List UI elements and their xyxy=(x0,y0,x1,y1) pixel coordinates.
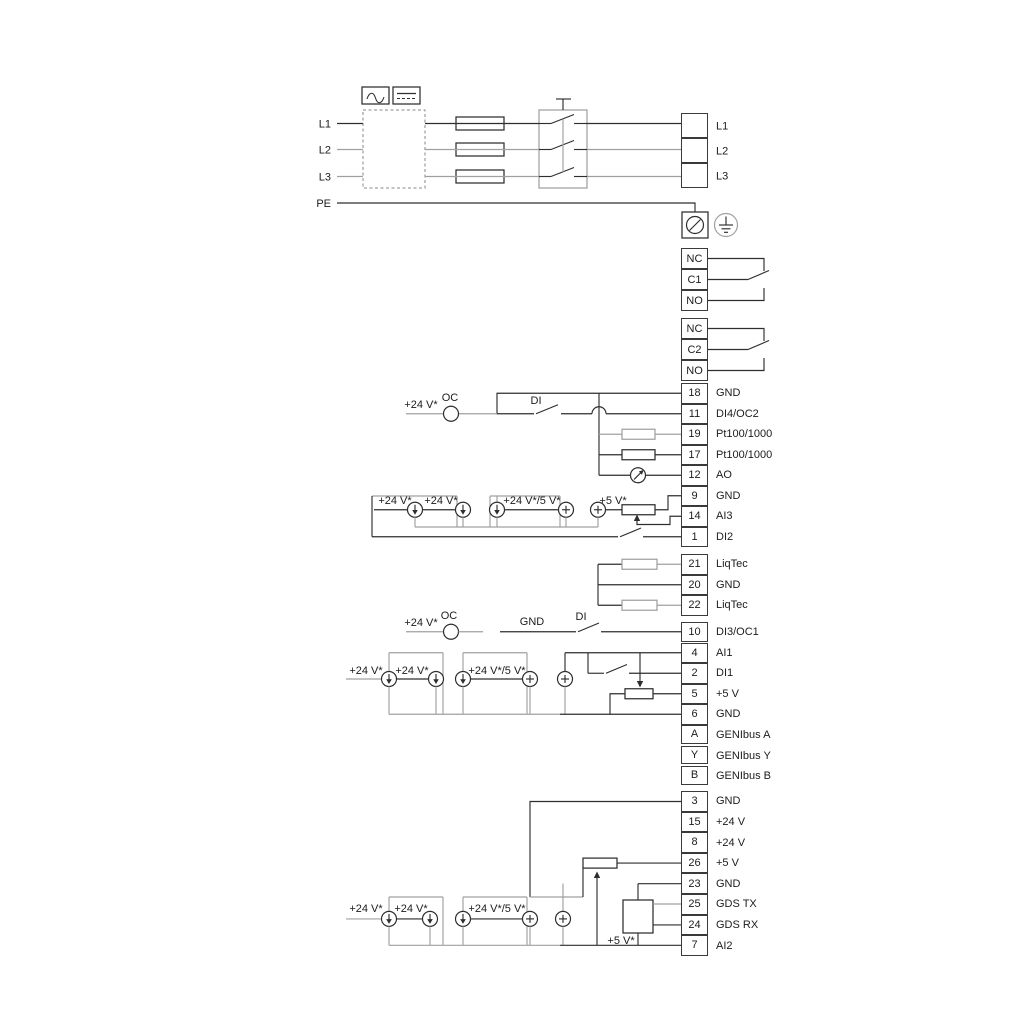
terminal-label: DI4/OC2 xyxy=(716,407,759,421)
terminal-io-block-3-26: 26 xyxy=(681,853,708,874)
potentiometer xyxy=(625,689,653,699)
open-collector-icon xyxy=(444,624,459,639)
terminal-label: GENIbus A xyxy=(716,728,770,742)
inline-label: +24 V* xyxy=(395,665,429,677)
terminal-number: Y xyxy=(691,749,698,761)
wiring-layer: +24 V*OCDI+24 V*+24 V*+24 V*/5 V*+5 V*+2… xyxy=(0,0,1024,1024)
terminal-io-block-3-23: 23 xyxy=(681,873,708,894)
inline-label: +24 V*/5 V* xyxy=(503,495,561,507)
terminal-number: 23 xyxy=(688,878,700,890)
terminal-number: 18 xyxy=(688,387,700,399)
terminal-io-block-1-19: 19 xyxy=(681,424,708,445)
relay-blade xyxy=(748,271,769,280)
inline-label: +5 V* xyxy=(607,935,635,947)
terminal-number: 22 xyxy=(688,599,700,611)
terminal-number: NO xyxy=(686,295,703,307)
resistor-pt100 xyxy=(622,450,655,460)
terminal-io-block-1-9: 9 xyxy=(681,486,708,507)
wiper-arrow-icon xyxy=(637,681,643,688)
phase-label: L2 xyxy=(319,145,331,157)
inline-label: DI xyxy=(576,611,587,623)
terminal-relay-output-1-NC: NC xyxy=(681,248,708,269)
potentiometer xyxy=(583,858,617,868)
terminal-number: NO xyxy=(686,365,703,377)
terminal-label: GND xyxy=(716,794,740,808)
terminal-number: 8 xyxy=(691,836,697,848)
terminal-label: +5 V xyxy=(716,687,739,701)
inline-label: +24 V* xyxy=(349,665,383,677)
terminal-relay-output-1-NO: NO xyxy=(681,290,708,311)
terminal-label: GND xyxy=(716,707,740,721)
terminal-number: NC xyxy=(687,253,703,265)
terminal-io-block-2-4: 4 xyxy=(681,643,708,664)
inline-label: +24 V* xyxy=(404,399,438,411)
terminal-number: 26 xyxy=(688,857,700,869)
terminal-number: 3 xyxy=(691,795,697,807)
terminal-io-block-2-6: 6 xyxy=(681,704,708,725)
terminal-io-block-1-12: 12 xyxy=(681,465,708,486)
terminal-label: +5 V xyxy=(716,856,739,870)
terminal-io-block-2-2: 2 xyxy=(681,663,708,684)
terminal-number: 12 xyxy=(688,469,700,481)
di-switch-blade xyxy=(606,665,627,674)
terminal-label: GND xyxy=(716,489,740,503)
inline-label: +24 V*/5 V* xyxy=(468,665,526,677)
terminal-relay-output-2-NC: NC xyxy=(681,318,708,339)
terminal-label: GDS TX xyxy=(716,897,757,911)
terminal-relay-output-1-C1: C1 xyxy=(681,269,708,290)
relay-no-wire xyxy=(708,358,764,371)
inline-label: +24 V* xyxy=(378,495,412,507)
terminal-label: AI2 xyxy=(716,939,733,953)
terminal-label: DI2 xyxy=(716,530,733,544)
phase-label: L3 xyxy=(716,171,728,183)
terminal-label: LiqTec xyxy=(716,557,748,571)
wire xyxy=(655,496,681,510)
phase-label: L1 xyxy=(319,119,331,131)
terminal-relay-output-2-NO: NO xyxy=(681,360,708,381)
terminal-label: GENIbus B xyxy=(716,769,771,783)
terminal-number: C2 xyxy=(687,344,701,356)
relay-nc-wire xyxy=(708,259,764,272)
terminal-io-block-2-5: 5 xyxy=(681,684,708,705)
wiper-arrow-icon xyxy=(634,515,640,522)
terminal-number: 14 xyxy=(688,510,700,522)
terminal-number: 2 xyxy=(691,667,697,679)
gnd-wire xyxy=(530,802,681,898)
terminal-number: 19 xyxy=(688,428,700,440)
terminal-label: Pt100/1000 xyxy=(716,448,772,462)
terminal-io-block-3-24: 24 xyxy=(681,915,708,936)
inline-label: OC xyxy=(442,392,459,404)
terminal-genibus-block-A: A xyxy=(681,725,708,744)
terminal-label: GND xyxy=(716,386,740,400)
terminal-label: +24 V xyxy=(716,836,745,850)
gds-sensor-box xyxy=(623,900,653,933)
wiper-arrow-icon xyxy=(594,872,600,879)
terminal-number: B xyxy=(691,769,698,781)
wire xyxy=(610,694,625,715)
terminal-number: 17 xyxy=(688,449,700,461)
terminal-number: NC xyxy=(687,323,703,335)
terminal-label: AI1 xyxy=(716,646,733,660)
terminal-power-L1 xyxy=(681,113,708,138)
terminal-number: 25 xyxy=(688,898,700,910)
terminal-io-block-3-7: 7 xyxy=(681,935,708,956)
relay-nc-wire xyxy=(708,329,764,342)
potentiometer xyxy=(622,505,655,515)
phase-label: PE xyxy=(316,198,331,210)
ac-symbol-icon xyxy=(362,87,389,104)
terminal-io-block-1-17: 17 xyxy=(681,445,708,466)
terminal-power-L3 xyxy=(681,163,708,188)
terminal-number: 4 xyxy=(691,647,697,659)
terminal-io-block-3-3: 3 xyxy=(681,791,708,812)
terminal-liqtec-block-21: 21 xyxy=(681,554,708,575)
inline-label: DI xyxy=(531,395,542,407)
inline-label: +5 V* xyxy=(599,495,627,507)
terminal-io-block-1-18: 18 xyxy=(681,383,708,404)
inline-label: OC xyxy=(441,610,458,622)
pe-wire xyxy=(337,203,695,212)
terminal-label: AO xyxy=(716,468,732,482)
terminal-label: DI1 xyxy=(716,666,733,680)
terminal-io-block-1-1: 1 xyxy=(681,527,708,548)
wiring-diagram: +24 V*OCDI+24 V*+24 V*+24 V*/5 V*+5 V*+2… xyxy=(0,0,1024,1024)
terminal-label: LiqTec xyxy=(716,598,748,612)
terminal-io-block-1-11: 11 xyxy=(681,404,708,425)
terminal-liqtec-block-20: 20 xyxy=(681,575,708,596)
terminal-label: GND xyxy=(716,578,740,592)
terminal-io-block-3-8: 8 xyxy=(681,832,708,853)
terminal-power-L2 xyxy=(681,138,708,163)
terminal-io-block-1-14: 14 xyxy=(681,506,708,527)
terminal-genibus-block-Y: Y xyxy=(681,746,708,765)
di-switch-blade xyxy=(578,623,599,632)
terminal-number: 9 xyxy=(691,490,697,502)
terminal-number: 24 xyxy=(688,919,700,931)
phase-label: L1 xyxy=(716,121,728,133)
terminal-number: C1 xyxy=(687,274,701,286)
dc-symbol-icon xyxy=(393,87,420,104)
relay-no-wire xyxy=(708,288,764,301)
relay-blade xyxy=(748,341,769,350)
di-switch-blade xyxy=(620,528,641,537)
terminal-number: 1 xyxy=(691,531,697,543)
terminal-number: 15 xyxy=(688,816,700,828)
inline-label: GND xyxy=(520,616,545,628)
inline-label: +24 V* xyxy=(424,495,458,507)
gnd-loop-wire xyxy=(497,393,681,414)
terminal-label: Pt100/1000 xyxy=(716,427,772,441)
terminal-number: 21 xyxy=(688,558,700,570)
terminal-number: 6 xyxy=(691,708,697,720)
terminal-label: GDS RX xyxy=(716,918,758,932)
liqtec-sensor xyxy=(622,559,657,569)
terminal-label: GENIbus Y xyxy=(716,749,771,763)
terminal-label: +24 V xyxy=(716,815,745,829)
terminal-number: 10 xyxy=(688,626,700,638)
terminal-label: DI3/OC1 xyxy=(716,625,759,639)
terminal-number: 20 xyxy=(688,579,700,591)
terminal-number: 7 xyxy=(691,939,697,951)
inline-label: +24 V* xyxy=(349,903,383,915)
phase-label: L3 xyxy=(319,172,331,184)
terminal-liqtec-block-22: 22 xyxy=(681,595,708,616)
terminal-number: 11 xyxy=(689,408,700,420)
inline-label: +24 V*/5 V* xyxy=(468,903,526,915)
terminal-label: GND xyxy=(716,877,740,891)
emc-filter-box xyxy=(363,110,425,188)
terminal-label: AI3 xyxy=(716,509,733,523)
terminal-number: A xyxy=(691,728,698,740)
terminal-number: 5 xyxy=(691,688,697,700)
wiper-wire xyxy=(637,516,681,524)
terminal-relay-output-2-C2: C2 xyxy=(681,339,708,360)
terminal-di3-block-10: 10 xyxy=(681,622,708,643)
inline-label: +24 V* xyxy=(394,903,428,915)
terminal-genibus-block-B: B xyxy=(681,766,708,785)
open-collector-icon xyxy=(444,406,459,421)
phase-label: L2 xyxy=(716,146,728,158)
liqtec-sensor xyxy=(622,600,657,610)
terminal-io-block-3-25: 25 xyxy=(681,894,708,915)
terminal-io-block-3-15: 15 xyxy=(681,812,708,833)
resistor-pt100 xyxy=(622,429,655,439)
inline-label: +24 V* xyxy=(404,617,438,629)
